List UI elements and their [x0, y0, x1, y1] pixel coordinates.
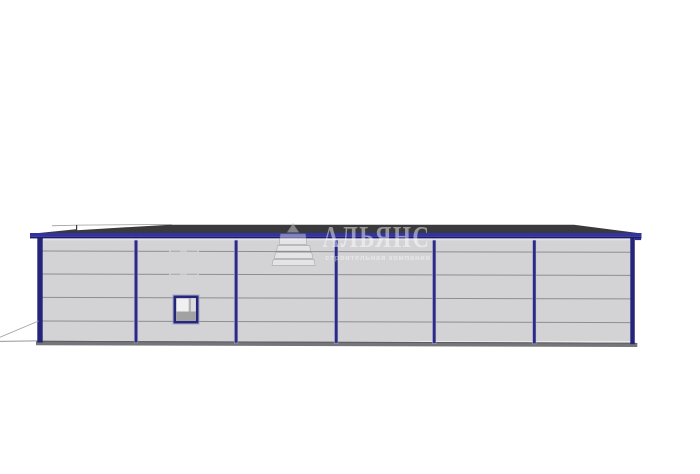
svg-text:строительная компания: строительная компания	[325, 253, 430, 262]
svg-text:АЛЬЯНС: АЛЬЯНС	[323, 220, 431, 254]
